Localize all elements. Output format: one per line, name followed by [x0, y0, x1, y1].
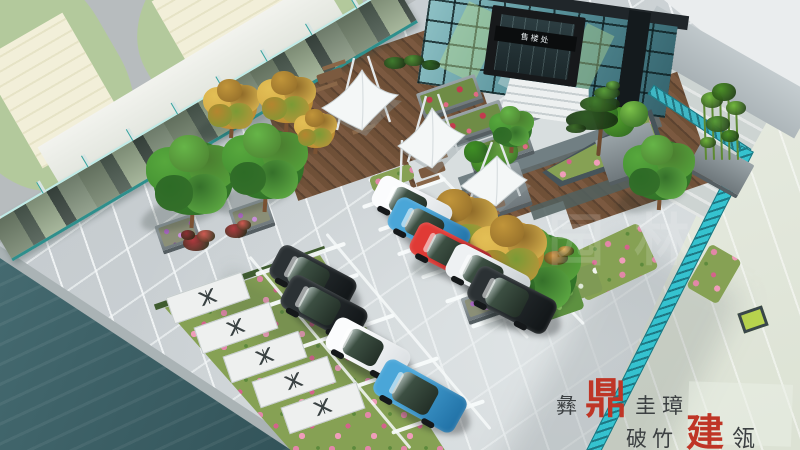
tree-canopy [243, 123, 281, 158]
tree-canopy [217, 79, 242, 102]
bamboo [726, 101, 746, 115]
signature-seal-char: 鼎 [585, 380, 627, 418]
entrance-portal: 售楼处 [483, 5, 586, 87]
watermark-text: 园林 [548, 196, 720, 277]
hedge [422, 60, 440, 70]
tree-canopy [230, 162, 266, 196]
bamboo [700, 137, 716, 148]
sculpture [313, 398, 333, 416]
sculpture [255, 347, 275, 365]
bonsai-pine [606, 81, 620, 90]
signature-line-2: 破竹 建 瓴 [626, 416, 755, 450]
sculpture [284, 372, 304, 390]
signature-line-1: 彝 鼎 圭璋 [556, 380, 755, 420]
entrance-sign-text: 售楼处 [520, 31, 551, 46]
bamboo [721, 130, 739, 142]
tree-canopy [155, 175, 193, 211]
tree-canopy [169, 135, 209, 172]
tree-canopy [490, 215, 524, 246]
signature-char: 彝 [556, 390, 577, 420]
tree-canopy [641, 135, 673, 165]
sculpture [226, 318, 246, 336]
signature-seal-char: 建 [686, 416, 724, 450]
tree-canopy [298, 129, 316, 146]
shrub [620, 101, 648, 126]
signature-chars: 破竹 [626, 423, 678, 450]
tree-canopy [262, 97, 287, 120]
brand-signature: 彝 鼎 圭璋 破竹 建 瓴 [556, 380, 755, 450]
hedge [404, 55, 424, 66]
bonsai-pine [566, 124, 586, 133]
tree-canopy [208, 104, 232, 126]
signature-char: 瓴 [732, 419, 755, 450]
signature-chars: 圭璋 [635, 390, 689, 420]
red-flower-bush [197, 230, 215, 242]
architectural-rendering: 售楼处 园林 彝 鼎 圭璋 破竹 建 瓴 [0, 0, 800, 450]
bamboo [712, 83, 736, 101]
hedge [384, 57, 406, 69]
tree-canopy [629, 168, 660, 196]
tree-canopy [271, 71, 297, 95]
sculpture [198, 288, 218, 306]
tree-canopy [305, 109, 324, 127]
tree-canopy [493, 127, 512, 145]
red-flower-bush [181, 230, 195, 240]
red-flower-bush [237, 220, 251, 230]
tree-canopy [500, 106, 520, 125]
